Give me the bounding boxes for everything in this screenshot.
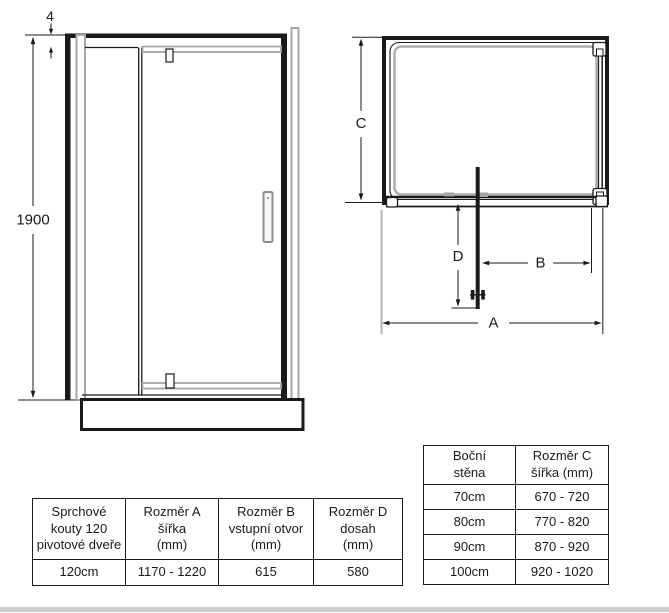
door-handle (264, 192, 273, 242)
pivot-bracket-bottom (166, 374, 174, 388)
dimension-gap-4: 4 (46, 8, 54, 59)
wall-top (382, 36, 609, 40)
door-handle-screw (267, 197, 269, 199)
dimension-height-1900: 1900 (16, 37, 49, 398)
dim-label-1900: 1900 (16, 212, 49, 229)
door-table-header-dim-d: Rozměr D dosah (mm) (314, 499, 403, 560)
pivot-bracket-top (166, 49, 173, 62)
profile-bracket-left (387, 198, 398, 208)
side-table-range: 920 - 1020 (516, 560, 609, 585)
side-glass-panel (599, 55, 603, 189)
top-view: C D B A (345, 36, 609, 334)
door-table-dim-d-value: 580 (314, 560, 403, 586)
side-table-range: 670 - 720 (516, 485, 609, 510)
right-wall-strip (292, 28, 299, 400)
dim-label-a: A (488, 315, 498, 332)
left-frame-profile (65, 35, 71, 400)
left-wall-strip (77, 35, 86, 400)
side-table-header-dim-c: Rozměr C šířka (mm) (516, 446, 609, 485)
right-frame-profile (281, 38, 287, 400)
front-view: 4 1900 (16, 8, 303, 430)
panel-door-divider (139, 48, 142, 396)
side-table-header-wall: Boční stěna (424, 446, 516, 485)
dimension-c: C (345, 37, 386, 202)
fixed-panel-lines (82, 48, 281, 396)
door-table-size: 120cm (33, 560, 126, 586)
dim-label-d: D (453, 248, 464, 265)
dim-label-b: B (535, 255, 545, 272)
side-table-size: 70cm (424, 485, 516, 510)
dimension-b: B (482, 208, 592, 273)
wall-right (605, 36, 609, 205)
tray-edge (395, 47, 597, 195)
side-table-range: 870 - 920 (516, 535, 609, 560)
door-table-header-dim-b: Rozměr B vstupní otvor (mm) (219, 499, 314, 560)
door-table-header-dim-a: Rozměr A šířka (mm) (126, 499, 219, 560)
side-table-size: 80cm (424, 510, 516, 535)
dim-label-4: 4 (46, 8, 54, 24)
shower-tray (82, 400, 304, 430)
door-table-dim-a-value: 1170 - 1220 (126, 560, 219, 586)
page: 4 1900 (0, 0, 669, 613)
enclosure-inner-edge (390, 43, 602, 200)
side-table-range: 770 - 820 (516, 510, 609, 535)
dimension-a: A (382, 208, 603, 334)
dim-label-c: C (356, 115, 367, 132)
door-table-header-product: Sprchové kouty 120 pivotové dveře (33, 499, 126, 560)
profile-bracket-right (596, 196, 608, 207)
door-table-dim-b-value: 615 (219, 560, 314, 586)
technical-drawing: 4 1900 (0, 0, 669, 445)
side-table-size: 90cm (424, 535, 516, 560)
wall-left (382, 36, 386, 205)
glass-clamp-top-inner (597, 49, 604, 56)
door-dimensions-table: Sprchové kouty 120 pivotové dveře Rozměr… (32, 498, 403, 586)
top-profile-bar (65, 34, 287, 39)
bottom-divider-bar (0, 607, 669, 612)
profile-tab-left (444, 193, 454, 197)
side-table-size: 100cm (424, 560, 516, 585)
door-top-rail (143, 47, 282, 53)
side-wall-table: Boční stěna Rozměr C šířka (mm) 70cm 670… (423, 445, 609, 585)
door-bottom-rail (143, 383, 282, 389)
